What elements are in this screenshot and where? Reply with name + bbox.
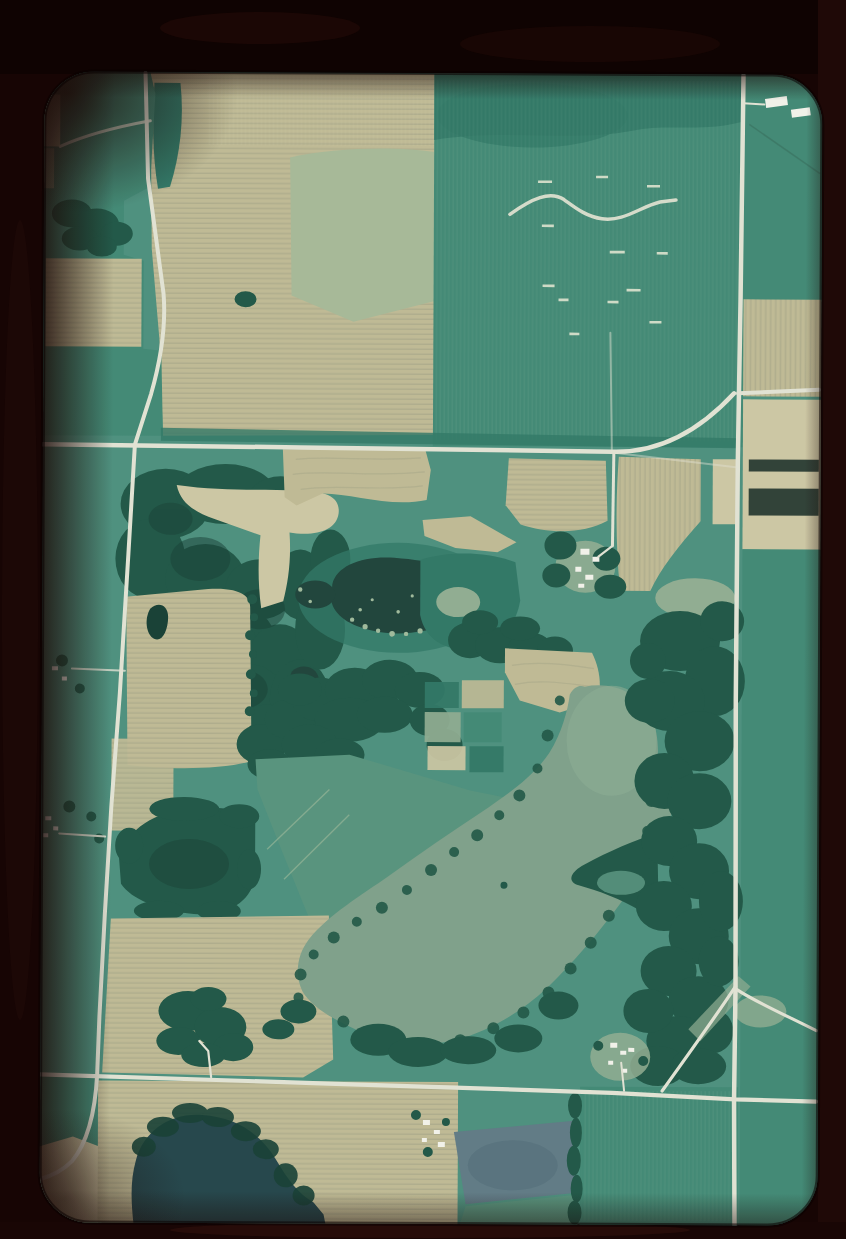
mount-top-strip: [0, 0, 846, 74]
vignette: [0, 0, 823, 1239]
aerial-photo-slide: [0, 0, 846, 1239]
mount-smudge: [460, 26, 720, 62]
mount-streak: [2, 220, 38, 1020]
aerial-photograph: [0, 0, 846, 1239]
photo-window: [0, 0, 823, 1239]
mount-smudge: [160, 12, 360, 44]
